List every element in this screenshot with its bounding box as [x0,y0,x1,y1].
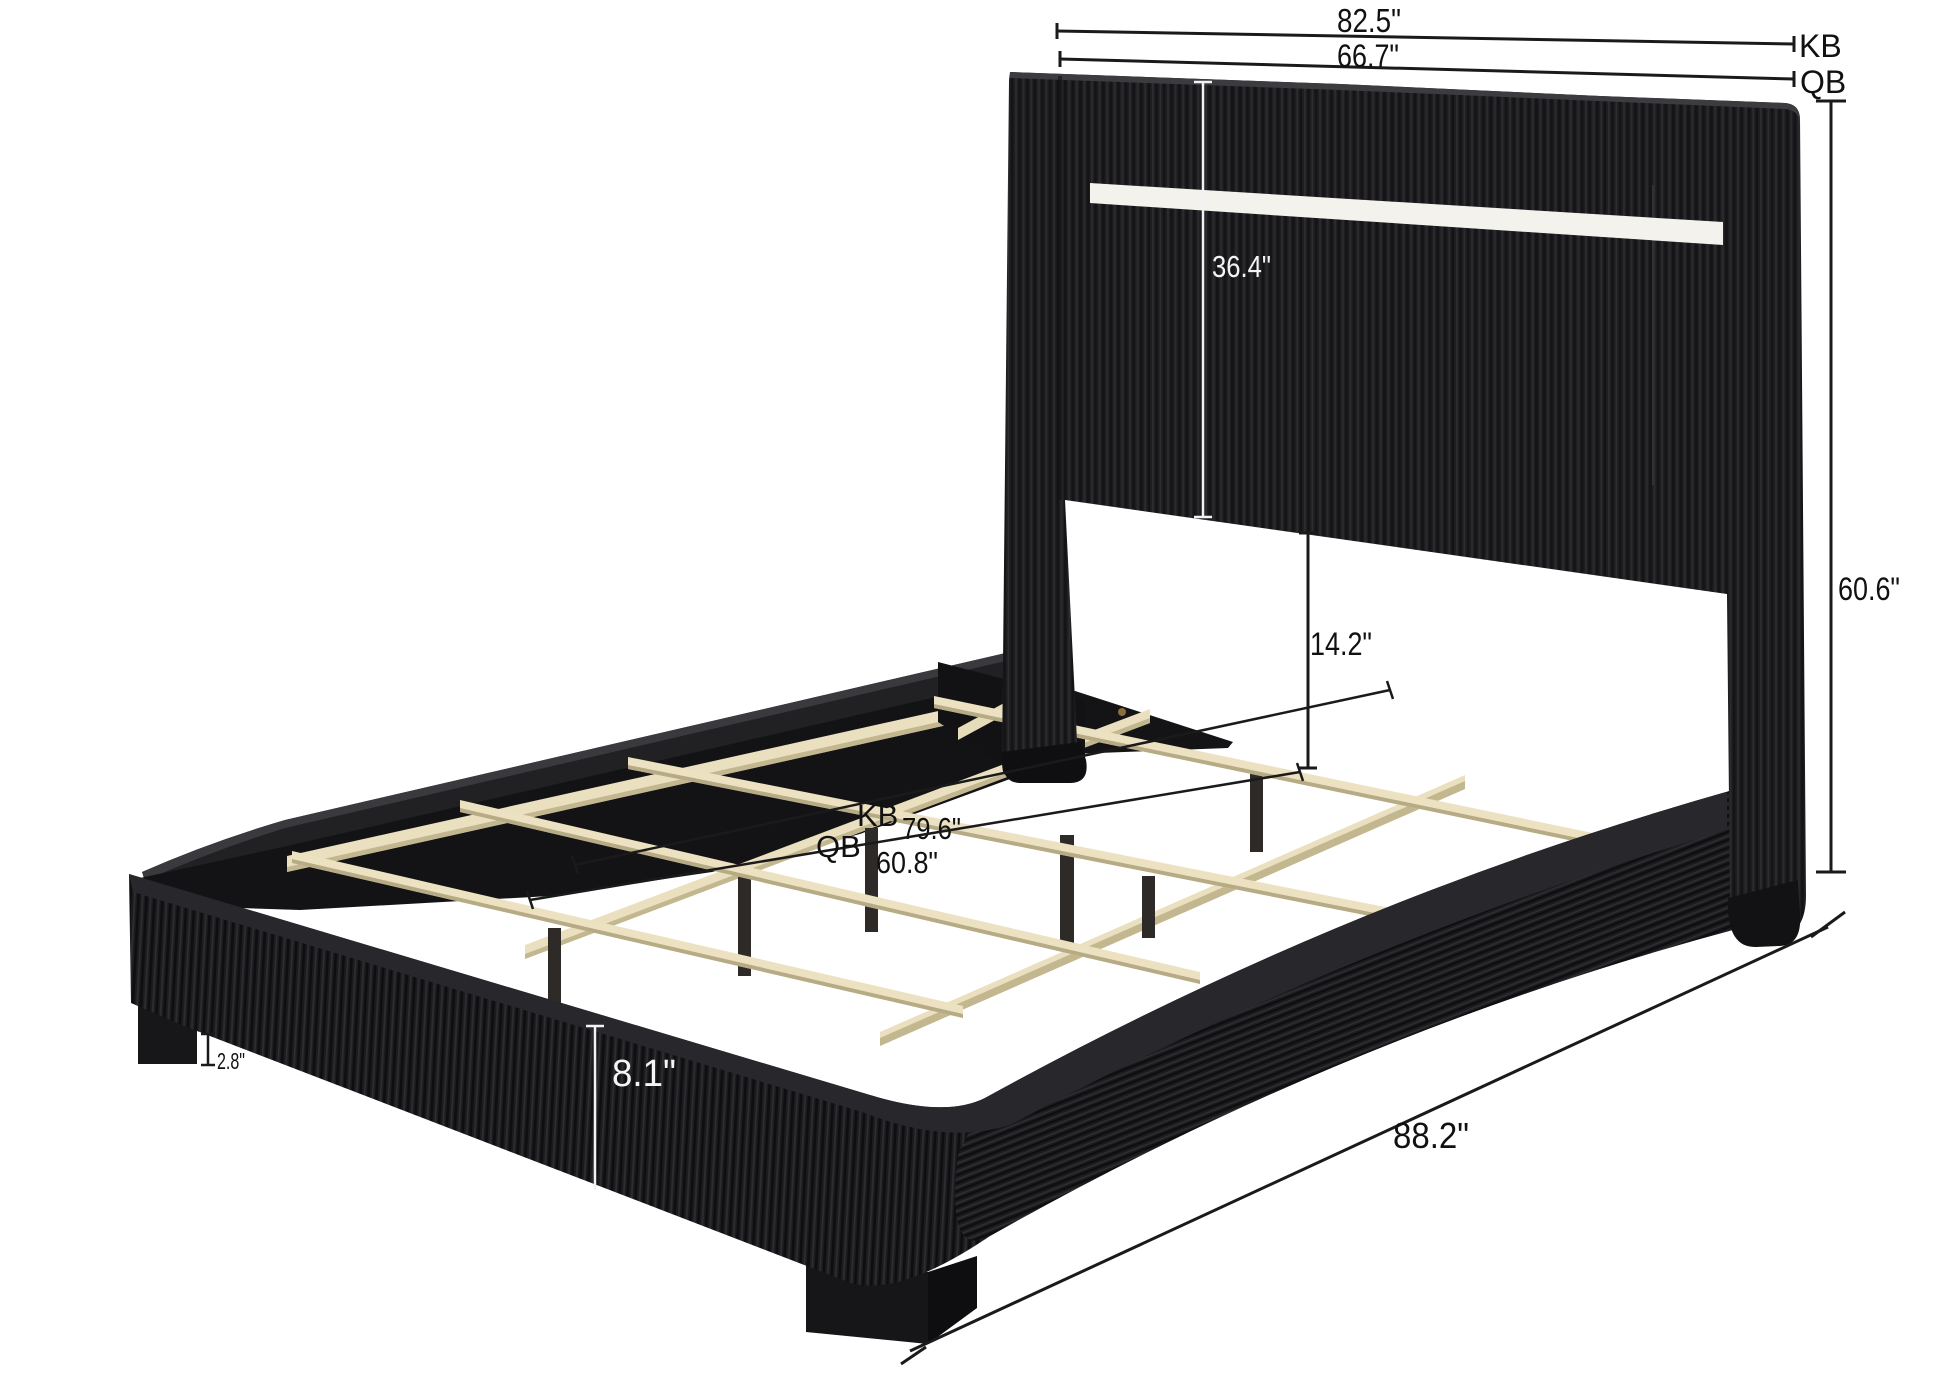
svg-text:QB: QB [1800,64,1846,100]
svg-text:88.2": 88.2" [1393,1115,1469,1156]
svg-text:KB: KB [1799,28,1842,64]
svg-text:8.1": 8.1" [612,1053,676,1095]
svg-text:66.7": 66.7" [1337,38,1399,74]
svg-text:KB: KB [857,798,898,833]
svg-text:82.5": 82.5" [1337,2,1401,39]
svg-text:60.8": 60.8" [876,845,938,880]
svg-text:QB: QB [816,829,861,864]
svg-text:2.8": 2.8" [217,1048,245,1074]
svg-text:14.2": 14.2" [1310,626,1372,662]
svg-text:60.6": 60.6" [1838,571,1900,607]
svg-text:36.4": 36.4" [1212,249,1271,284]
svg-text:79.6": 79.6" [902,811,961,846]
